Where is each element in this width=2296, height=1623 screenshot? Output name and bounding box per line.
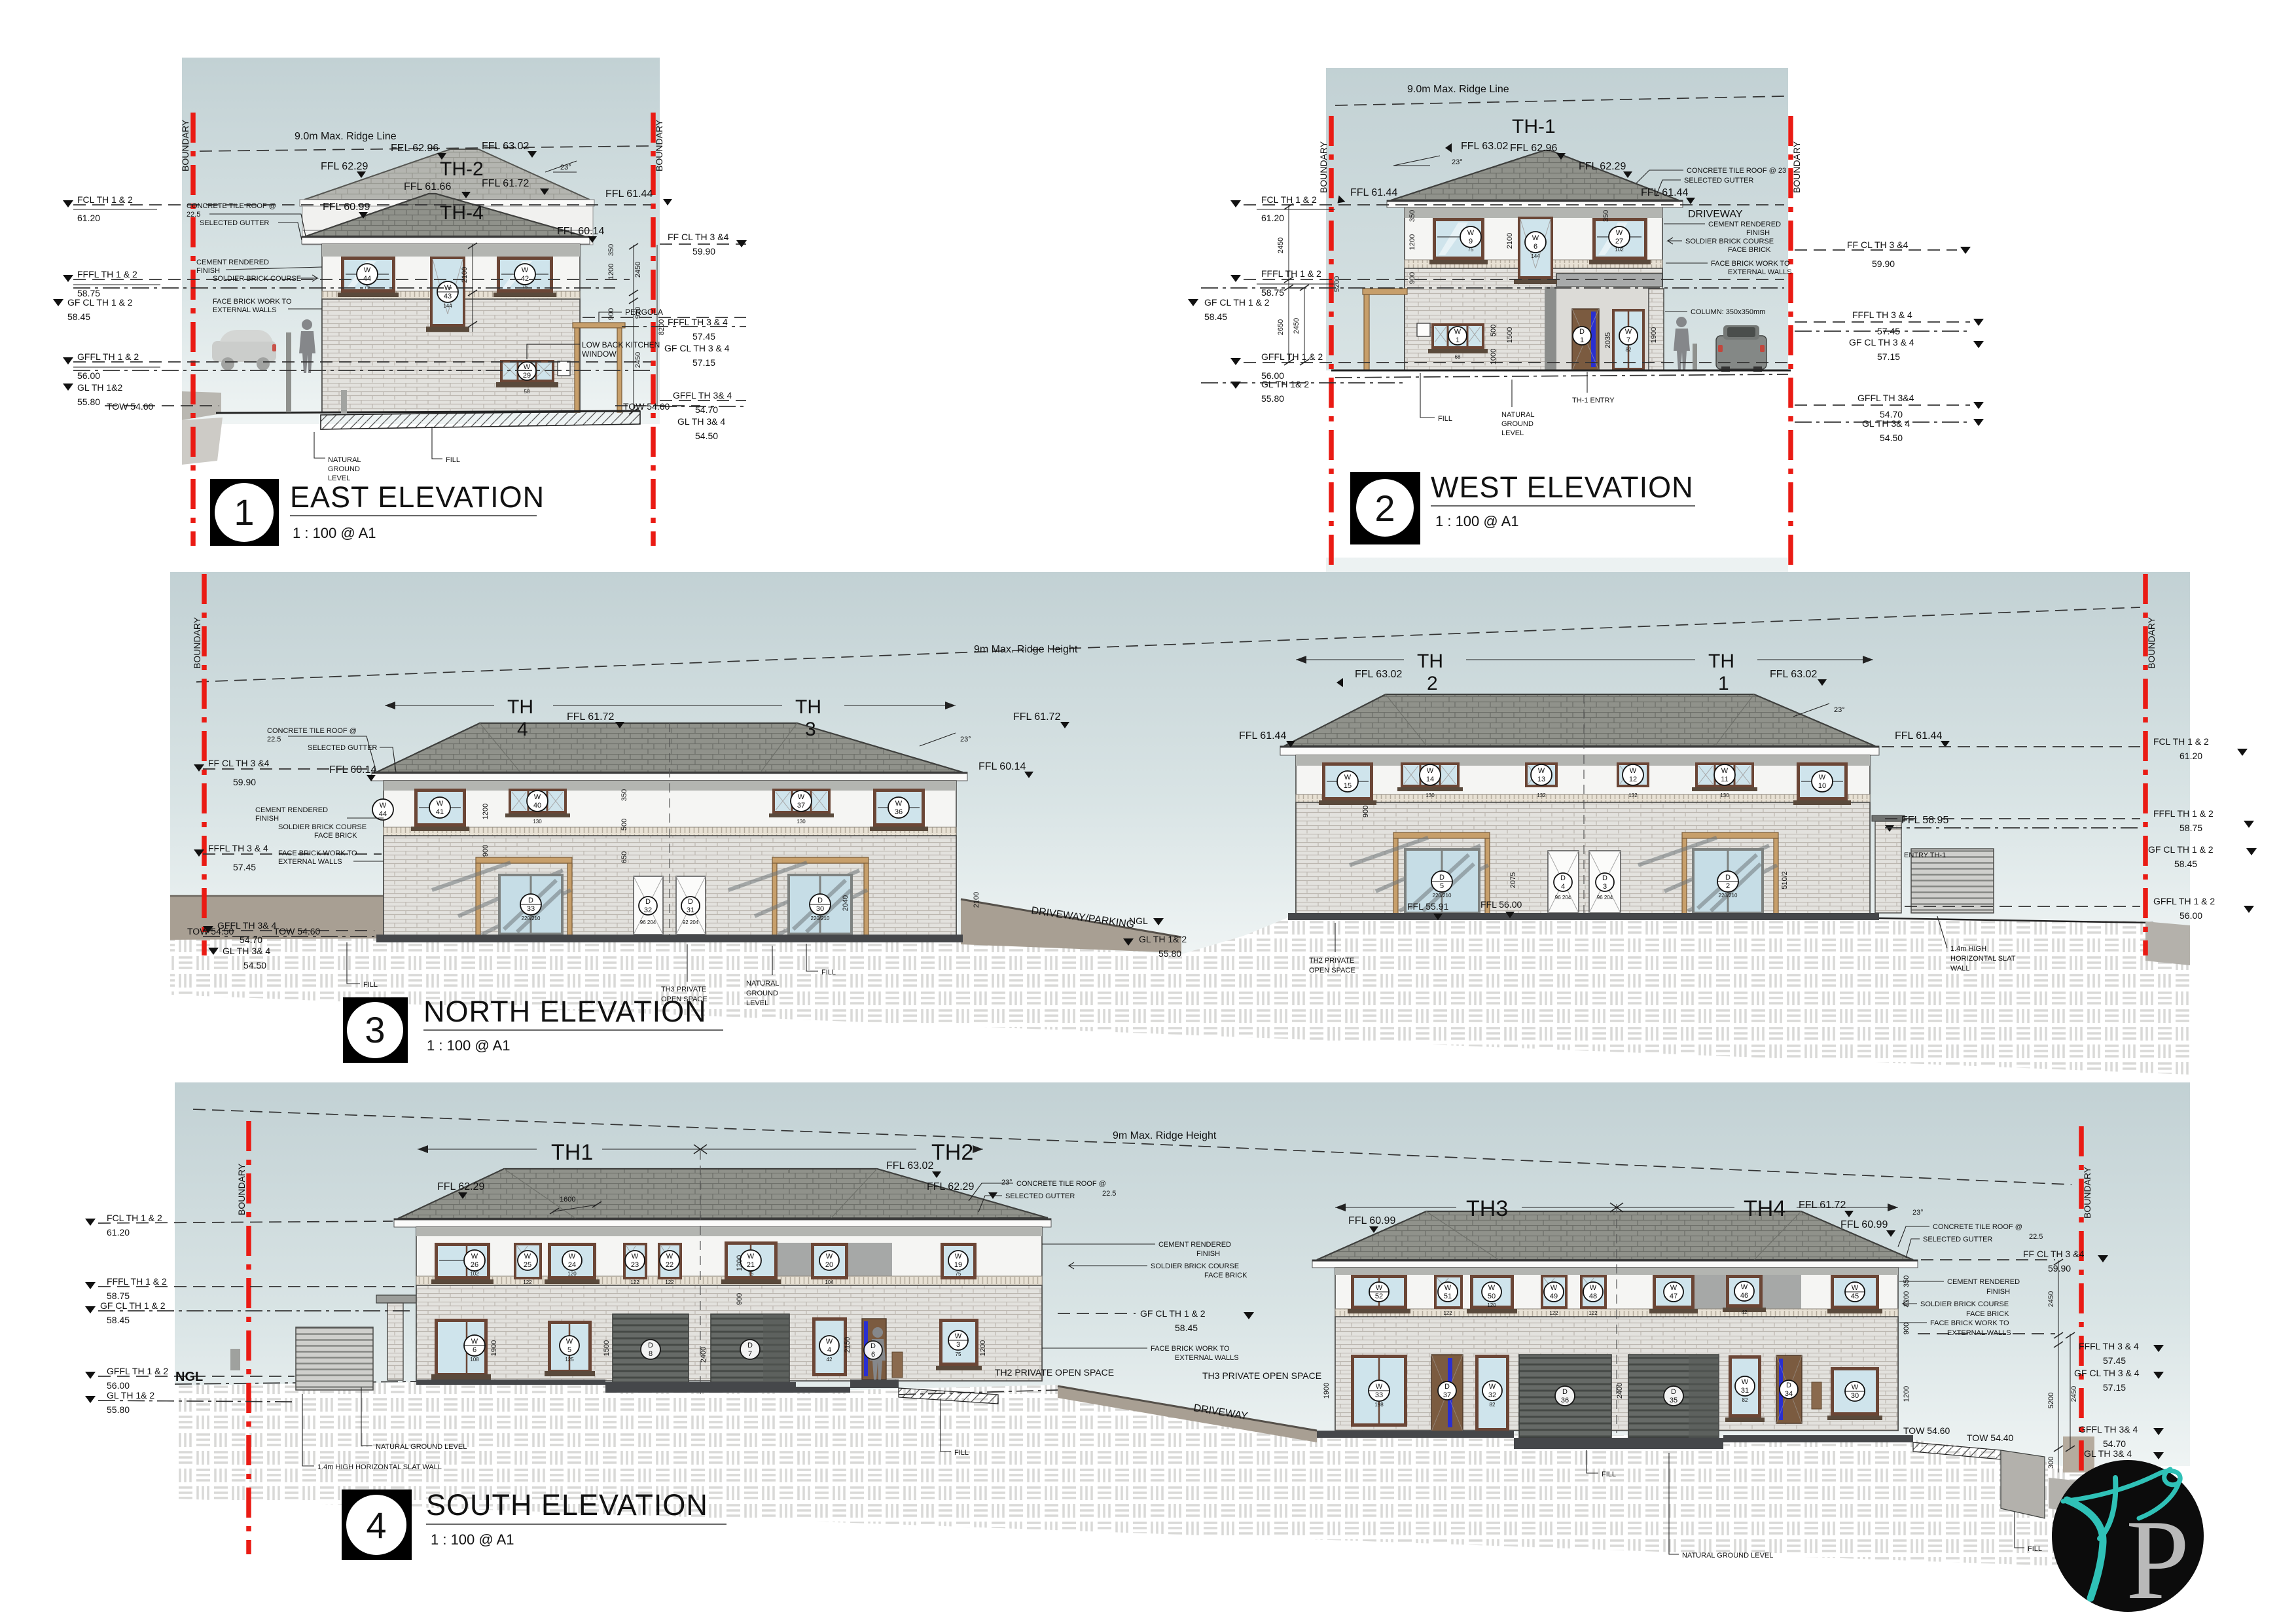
svg-text:82: 82 [1742, 1397, 1748, 1403]
svg-text:FFL 61.44: FFL 61.44 [1350, 187, 1397, 198]
svg-text:26: 26 [471, 1261, 478, 1269]
svg-text:TH3 PRIVATE: TH3 PRIVATE [661, 986, 706, 993]
svg-text:1200: 1200 [482, 804, 490, 819]
svg-text:SELECTED GUTTER: SELECTED GUTTER [1923, 1236, 1992, 1243]
svg-text:57.15: 57.15 [2103, 1382, 2126, 1393]
svg-text:W: W [1376, 1284, 1383, 1292]
svg-text:EXTERNAL WALLS: EXTERNAL WALLS [1947, 1329, 2011, 1337]
svg-text:102: 102 [1615, 247, 1624, 253]
svg-text:1900: 1900 [1323, 1383, 1331, 1399]
svg-text:2075: 2075 [1509, 872, 1517, 888]
svg-text:59.90: 59.90 [2048, 1263, 2071, 1274]
svg-text:FFL 61.44: FFL 61.44 [1239, 730, 1286, 741]
svg-text:33: 33 [1375, 1391, 1383, 1399]
svg-text:GFFL TH 3& 4: GFFL TH 3& 4 [673, 390, 732, 401]
svg-text:9m Max. Ridge Height: 9m Max. Ridge Height [974, 644, 1078, 655]
svg-text:W: W [522, 266, 529, 274]
svg-text:GF CL TH 1 & 2: GF CL TH 1 & 2 [2148, 844, 2214, 855]
svg-text:144: 144 [443, 303, 452, 309]
svg-text:FFFL TH 3 & 4: FFFL TH 3 & 4 [208, 843, 268, 853]
svg-text:W: W [1670, 1284, 1677, 1292]
svg-text:23°: 23° [560, 164, 571, 171]
svg-text:FILL: FILL [2028, 1545, 2042, 1553]
svg-text:FACE BRICK: FACE BRICK [1204, 1272, 1247, 1279]
svg-text:SOLDIER BRICK COURSE: SOLDIER BRICK COURSE [278, 823, 367, 831]
svg-text:55.80: 55.80 [77, 397, 100, 407]
svg-text:9.0m Max. Ridge Line: 9.0m Max. Ridge Line [1407, 84, 1509, 95]
svg-text:CEMENT RENDERED: CEMENT RENDERED [1158, 1241, 1231, 1249]
svg-text:52: 52 [1375, 1293, 1383, 1300]
svg-text:WINDOW: WINDOW [582, 349, 617, 359]
svg-text:2450: 2450 [1293, 318, 1300, 334]
svg-text:2100: 2100 [1506, 233, 1514, 249]
svg-text:GF CL TH 1 & 2: GF CL TH 1 & 2 [100, 1300, 166, 1311]
svg-text:FINISH: FINISH [1196, 1250, 1220, 1258]
svg-text:5: 5 [567, 1346, 571, 1354]
svg-text:NATURAL: NATURAL [746, 980, 780, 988]
svg-text:54.50: 54.50 [695, 431, 718, 441]
svg-text:W: W [1444, 1284, 1452, 1292]
svg-text:CONCRETE TILE ROOF @: CONCRETE TILE ROOF @ [267, 727, 357, 735]
svg-text:FILL: FILL [1602, 1471, 1616, 1478]
svg-text:5200: 5200 [2047, 1393, 2055, 1408]
svg-text:FFL 61.72: FFL 61.72 [1013, 711, 1060, 722]
svg-text:900: 900 [1903, 1323, 1910, 1334]
svg-text:FFL 58.95: FFL 58.95 [1901, 815, 1948, 826]
svg-text:W: W [826, 1253, 833, 1260]
svg-text:900: 900 [1408, 272, 1416, 284]
svg-text:CONCRETE TILE ROOF @: CONCRETE TILE ROOF @ [1016, 1180, 1106, 1188]
svg-text:2450: 2450 [634, 262, 642, 277]
svg-text:GL TH 1& 2: GL TH 1& 2 [1261, 379, 1309, 389]
svg-text:GFFL TH 1 & 2: GFFL TH 1 & 2 [2153, 896, 2215, 906]
svg-text:54.50: 54.50 [1880, 433, 1903, 443]
svg-text:1: 1 [234, 491, 254, 533]
svg-text:2040: 2040 [842, 895, 850, 911]
svg-text:2100: 2100 [973, 892, 980, 908]
svg-text:1 : 100 @ A1: 1 : 100 @ A1 [427, 1037, 511, 1054]
svg-text:36: 36 [895, 808, 903, 816]
svg-text:FFL 63.02: FFL 63.02 [886, 1160, 933, 1171]
svg-text:6: 6 [473, 1346, 476, 1354]
svg-text:58.75: 58.75 [2179, 823, 2202, 833]
svg-text:42: 42 [1742, 1310, 1748, 1315]
svg-text:FACE BRICK WORK TO: FACE BRICK WORK TO [213, 298, 292, 306]
svg-text:130: 130 [797, 819, 806, 825]
svg-text:24: 24 [568, 1261, 576, 1269]
svg-text:FACE BRICK: FACE BRICK [314, 832, 357, 840]
svg-text:FACE BRICK: FACE BRICK [1728, 246, 1771, 254]
svg-text:58.75: 58.75 [1261, 287, 1284, 298]
svg-text:5: 5 [1440, 882, 1444, 890]
svg-text:FCL TH 1 & 2: FCL TH 1 & 2 [107, 1213, 162, 1223]
svg-text:45: 45 [1851, 1293, 1859, 1300]
svg-text:59.90: 59.90 [233, 777, 256, 787]
svg-text:W: W [524, 1253, 531, 1260]
svg-text:6: 6 [1534, 243, 1537, 251]
svg-text:SOLDIER BRICK COURSE: SOLDIER BRICK COURSE [213, 275, 301, 283]
svg-text:COLUMN: 350x350mm: COLUMN: 350x350mm [1691, 308, 1765, 316]
svg-text:TH2 PRIVATE: TH2 PRIVATE [1309, 957, 1354, 965]
svg-text:FFFL TH 3 & 4: FFFL TH 3 & 4 [1852, 310, 1912, 320]
svg-text:22: 22 [666, 1261, 673, 1269]
svg-text:32: 32 [644, 906, 652, 914]
svg-text:NATURAL GROUND LEVEL: NATURAL GROUND LEVEL [376, 1443, 467, 1451]
svg-text:W: W [1742, 1378, 1749, 1386]
svg-text:CONCRETE TILE ROOF @ 23: CONCRETE TILE ROOF @ 23 [1687, 167, 1786, 175]
svg-text:W: W [1625, 328, 1632, 336]
svg-text:FFL 63.02: FFL 63.02 [1355, 669, 1402, 680]
svg-text:BOUNDARY: BOUNDARY [654, 119, 664, 171]
svg-text:D: D [1560, 874, 1566, 882]
svg-text:NORTH ELEVATION: NORTH ELEVATION [423, 995, 707, 1028]
svg-text:GL TH 1& 2: GL TH 1& 2 [1139, 934, 1187, 944]
svg-text:900: 900 [607, 308, 615, 320]
svg-text:1: 1 [1718, 673, 1729, 694]
svg-text:W: W [1454, 328, 1462, 336]
svg-text:3: 3 [805, 719, 816, 740]
svg-text:TH2 PRIVATE OPEN SPACE: TH2 PRIVATE OPEN SPACE [995, 1367, 1114, 1378]
svg-text:198: 198 [1374, 1402, 1384, 1408]
svg-text:92 204: 92 204 [683, 919, 699, 925]
svg-text:W: W [380, 802, 387, 810]
svg-text:102: 102 [470, 1271, 479, 1277]
svg-text:32: 32 [1488, 1391, 1496, 1399]
svg-text:122: 122 [1588, 1310, 1598, 1316]
svg-text:59.90: 59.90 [1872, 259, 1895, 269]
svg-text:2400: 2400 [700, 1347, 708, 1363]
svg-text:FFFL TH 1 & 2: FFFL TH 1 & 2 [2153, 808, 2214, 819]
svg-text:FACE BRICK WORK TO: FACE BRICK WORK TO [1930, 1319, 2009, 1327]
svg-text:FFL 60.14: FFL 60.14 [978, 761, 1026, 772]
svg-text:TOW 54.60: TOW 54.60 [623, 401, 670, 412]
svg-text:56.00: 56.00 [107, 1380, 130, 1391]
svg-text:2: 2 [1726, 882, 1730, 890]
svg-text:EAST ELEVATION: EAST ELEVATION [290, 480, 545, 514]
svg-text:11: 11 [1721, 776, 1728, 783]
svg-text:FFL 60.99: FFL 60.99 [1840, 1219, 1888, 1230]
svg-text:GF CL TH 3 & 4: GF CL TH 3 & 4 [664, 343, 730, 353]
svg-text:2: 2 [1427, 673, 1438, 694]
svg-text:20: 20 [825, 1261, 833, 1269]
svg-text:1200: 1200 [1903, 1386, 1910, 1402]
svg-text:D: D [688, 898, 693, 906]
svg-text:46: 46 [1740, 1292, 1748, 1300]
svg-text:NGL: NGL [175, 1370, 203, 1384]
svg-text:FINISH: FINISH [196, 267, 220, 275]
svg-text:ENTRY TH-1: ENTRY TH-1 [1904, 851, 1946, 859]
svg-text:TOW 54.60: TOW 54.60 [1903, 1425, 1950, 1436]
svg-text:W: W [666, 1253, 673, 1260]
svg-text:W: W [1532, 234, 1539, 242]
svg-text:TH3: TH3 [1466, 1196, 1508, 1221]
svg-text:W: W [1376, 1383, 1383, 1391]
svg-text:W: W [1344, 774, 1352, 781]
svg-text:W: W [632, 1253, 639, 1260]
svg-text:D: D [1439, 874, 1444, 882]
svg-text:75: 75 [1468, 247, 1474, 253]
svg-text:61.20: 61.20 [77, 213, 100, 223]
svg-text:GFFL TH 3& 4: GFFL TH 3& 4 [2079, 1424, 2138, 1435]
svg-text:57.45: 57.45 [233, 862, 256, 872]
svg-text:EXTERNAL WALLS: EXTERNAL WALLS [1175, 1354, 1239, 1362]
svg-text:NATURAL GROUND LEVEL: NATURAL GROUND LEVEL [1682, 1552, 1773, 1560]
svg-text:FFFL TH 1 & 2: FFFL TH 1 & 2 [1261, 268, 1321, 279]
svg-text:FFL 62.29: FFL 62.29 [1579, 161, 1626, 172]
svg-text:1000: 1000 [1490, 349, 1498, 365]
svg-text:23°: 23° [1834, 706, 1845, 714]
svg-text:FILL: FILL [821, 969, 836, 976]
svg-text:TH-1: TH-1 [1512, 116, 1556, 137]
svg-text:8: 8 [649, 1350, 653, 1358]
svg-text:SOLDIER BRICK COURSE: SOLDIER BRICK COURSE [1685, 238, 1774, 245]
svg-text:56.00: 56.00 [77, 370, 100, 381]
svg-text:50: 50 [1488, 1293, 1496, 1300]
svg-text:TH-2: TH-2 [440, 158, 484, 180]
svg-text:D: D [1444, 1383, 1450, 1391]
svg-text:44: 44 [379, 810, 387, 818]
svg-text:FFL 61.72: FFL 61.72 [567, 711, 614, 722]
svg-text:BOUNDARY: BOUNDARY [1791, 141, 1802, 193]
svg-text:500: 500 [1490, 325, 1498, 336]
svg-text:BOUNDARY: BOUNDARY [180, 119, 190, 171]
svg-text:TOW 54.40: TOW 54.40 [1967, 1433, 2014, 1443]
svg-text:57.45: 57.45 [692, 331, 715, 342]
svg-text:2100: 2100 [461, 267, 469, 283]
svg-text:15: 15 [1344, 782, 1352, 790]
svg-text:144: 144 [1531, 253, 1540, 259]
svg-text:920: 920 [634, 307, 642, 319]
svg-text:FF CL TH 3 &4: FF CL TH 3 &4 [668, 232, 729, 242]
svg-text:1200: 1200 [736, 1255, 744, 1271]
svg-text:23°: 23° [960, 736, 971, 743]
svg-text:W: W [955, 1253, 962, 1260]
svg-text:FFL 62.96: FFL 62.96 [1510, 143, 1557, 154]
svg-text:8200: 8200 [658, 319, 666, 335]
svg-text:58.45: 58.45 [107, 1315, 130, 1325]
svg-text:FF CL TH 3 &4: FF CL TH 3 &4 [1847, 240, 1909, 250]
svg-text:W: W [534, 793, 541, 801]
svg-text:CEMENT RENDERED: CEMENT RENDERED [1708, 221, 1781, 228]
svg-text:BOUNDARY: BOUNDARY [2082, 1166, 2092, 1219]
svg-text:82: 82 [1490, 1402, 1496, 1408]
svg-text:21: 21 [747, 1261, 755, 1269]
svg-text:75: 75 [522, 284, 528, 290]
svg-text:D: D [1602, 874, 1607, 882]
svg-text:75: 75 [748, 1271, 754, 1277]
svg-text:W: W [566, 1338, 573, 1346]
svg-text:12: 12 [1629, 776, 1637, 783]
svg-text:36: 36 [1561, 1397, 1569, 1404]
svg-text:W: W [1852, 1284, 1859, 1292]
svg-text:W: W [1630, 767, 1637, 775]
svg-text:GL TH 1&2: GL TH 1&2 [77, 382, 122, 393]
svg-text:TH: TH [795, 696, 821, 718]
svg-text:33: 33 [527, 905, 535, 913]
svg-text:D: D [645, 898, 651, 906]
svg-text:350: 350 [607, 244, 615, 256]
svg-text:4: 4 [366, 1505, 386, 1546]
svg-text:CEMENT RENDERED: CEMENT RENDERED [1947, 1278, 2020, 1286]
svg-text:FFL 56.00: FFL 56.00 [1480, 899, 1522, 910]
svg-text:7: 7 [748, 1350, 752, 1358]
svg-text:48: 48 [1589, 1293, 1597, 1300]
svg-text:2450: 2450 [2047, 1291, 2055, 1307]
svg-text:FFL 62.29: FFL 62.29 [321, 161, 368, 172]
svg-text:55.80: 55.80 [1158, 948, 1181, 959]
svg-text:W: W [798, 793, 805, 801]
svg-text:GFFL TH 1 & 2: GFFL TH 1 & 2 [107, 1366, 168, 1376]
svg-text:4: 4 [1561, 883, 1565, 891]
svg-text:HORIZONTAL SLAT: HORIZONTAL SLAT [1950, 955, 2016, 963]
svg-text:54.70: 54.70 [695, 404, 718, 415]
svg-text:W: W [1427, 767, 1434, 775]
svg-text:SELECTED GUTTER: SELECTED GUTTER [308, 744, 377, 752]
svg-text:D: D [817, 897, 823, 904]
svg-text:D: D [1579, 328, 1585, 336]
svg-text:LOW BACK KITCHEN: LOW BACK KITCHEN [582, 340, 660, 349]
svg-text:EXTERNAL WALLS: EXTERNAL WALLS [213, 306, 277, 314]
svg-text:58: 58 [524, 389, 530, 395]
svg-text:108: 108 [470, 1357, 479, 1363]
svg-text:22.5: 22.5 [2029, 1233, 2043, 1241]
svg-text:CEMENT RENDERED: CEMENT RENDERED [255, 806, 328, 814]
svg-text:3: 3 [365, 1009, 385, 1050]
svg-text:40: 40 [533, 802, 541, 810]
svg-text:W: W [1551, 1284, 1558, 1292]
svg-text:58.45: 58.45 [1204, 312, 1227, 322]
svg-text:130: 130 [533, 819, 542, 825]
svg-text:BOUNDARY: BOUNDARY [192, 616, 202, 669]
svg-text:1 : 100 @ A1: 1 : 100 @ A1 [431, 1531, 514, 1548]
svg-text:TH2: TH2 [931, 1140, 973, 1165]
svg-text:TOW 54.50: TOW 54.50 [187, 926, 234, 936]
svg-text:42: 42 [827, 1357, 833, 1363]
svg-text:CONCRETE TILE ROOF @: CONCRETE TILE ROOF @ [1933, 1223, 2022, 1231]
svg-text:FCL TH 1 & 2: FCL TH 1 & 2 [1261, 194, 1317, 205]
svg-text:TOW 54.60: TOW 54.60 [274, 926, 321, 936]
svg-text:GL TH 1& 2: GL TH 1& 2 [107, 1390, 154, 1400]
svg-text:6: 6 [871, 1351, 875, 1359]
svg-text:FCL TH 1 & 2: FCL TH 1 & 2 [77, 194, 133, 205]
svg-text:NGL: NGL [1129, 916, 1148, 926]
svg-text:1.4m HIGH HORIZONTAL SLAT WALL: 1.4m HIGH HORIZONTAL SLAT WALL [317, 1463, 442, 1471]
svg-text:130: 130 [1426, 793, 1435, 798]
svg-text:W: W [826, 1338, 833, 1346]
svg-text:FINISH: FINISH [1986, 1288, 2010, 1296]
svg-text:SOLDIER BRICK COURSE: SOLDIER BRICK COURSE [1920, 1300, 2009, 1308]
svg-text:FFFL TH 3 & 4: FFFL TH 3 & 4 [2079, 1341, 2139, 1351]
svg-text:43: 43 [444, 293, 452, 300]
svg-text:SOLDIER BRICK COURSE: SOLDIER BRICK COURSE [1151, 1262, 1239, 1270]
svg-text:2035: 2035 [1604, 332, 1612, 348]
svg-text:FEL 62.96: FEL 62.96 [391, 143, 439, 154]
svg-text:31: 31 [1741, 1387, 1749, 1395]
svg-text:23°: 23° [1001, 1179, 1013, 1186]
svg-text:1200: 1200 [979, 1340, 987, 1356]
svg-text:350: 350 [1602, 210, 1610, 222]
svg-text:30: 30 [1851, 1392, 1859, 1400]
svg-text:4: 4 [517, 719, 528, 740]
svg-text:19: 19 [954, 1261, 962, 1269]
svg-text:58.45: 58.45 [2174, 859, 2197, 869]
svg-text:37: 37 [1443, 1391, 1451, 1399]
svg-text:4: 4 [827, 1346, 831, 1354]
svg-text:7: 7 [1626, 336, 1630, 344]
svg-text:47: 47 [1670, 1293, 1677, 1300]
svg-text:120: 120 [567, 1271, 577, 1277]
svg-text:41: 41 [436, 808, 444, 816]
svg-text:TOW 54.60: TOW 54.60 [107, 401, 154, 412]
svg-text:1900: 1900 [490, 1340, 498, 1356]
svg-text:GL TH 3& 4: GL TH 3& 4 [1862, 418, 1910, 429]
svg-text:GROUND: GROUND [328, 465, 360, 473]
svg-text:61.20: 61.20 [107, 1227, 130, 1238]
svg-text:D: D [528, 897, 533, 904]
svg-text:FFL 61.72: FFL 61.72 [1799, 1200, 1846, 1211]
svg-text:W: W [955, 1332, 962, 1340]
svg-text:122: 122 [523, 1279, 532, 1285]
svg-text:35: 35 [1670, 1397, 1677, 1404]
svg-text:FINISH: FINISH [255, 815, 279, 823]
svg-text:300: 300 [2047, 1457, 2055, 1469]
svg-text:TH: TH [1417, 651, 1443, 672]
svg-text:W: W [1488, 1284, 1496, 1292]
svg-text:FFL 55.91: FFL 55.91 [1407, 901, 1449, 912]
svg-text:42: 42 [521, 275, 529, 283]
svg-text:25: 25 [524, 1261, 531, 1269]
svg-text:9m Max. Ridge Height: 9m Max. Ridge Height [1113, 1130, 1217, 1141]
svg-text:FCL TH 1 & 2: FCL TH 1 & 2 [2153, 736, 2209, 747]
svg-text:34: 34 [1785, 1390, 1793, 1398]
svg-text:FFL 60.99: FFL 60.99 [1348, 1215, 1395, 1226]
svg-text:57.15: 57.15 [1877, 351, 1900, 362]
svg-text:31: 31 [687, 906, 694, 914]
svg-text:GF CL TH 3 & 4: GF CL TH 3 & 4 [1849, 337, 1914, 348]
svg-text:GF CL TH 1 & 2: GF CL TH 1 & 2 [1204, 297, 1270, 308]
svg-text:W: W [1489, 1383, 1496, 1391]
svg-text:14: 14 [1426, 776, 1434, 783]
svg-text:1200: 1200 [607, 264, 615, 279]
svg-text:13: 13 [1537, 776, 1545, 783]
svg-text:22.5: 22.5 [267, 736, 281, 743]
svg-text:W: W [1819, 774, 1826, 781]
svg-text:GL TH 3& 4: GL TH 3& 4 [223, 946, 270, 956]
svg-text:75: 75 [956, 1271, 961, 1277]
svg-text:350: 350 [1408, 210, 1416, 222]
svg-text:132: 132 [1628, 793, 1638, 798]
svg-text:GL TH 3& 4: GL TH 3& 4 [677, 416, 725, 427]
svg-text:BOUNDARY: BOUNDARY [236, 1163, 247, 1215]
svg-text:TH3 PRIVATE OPEN SPACE: TH3 PRIVATE OPEN SPACE [1202, 1370, 1321, 1381]
svg-text:FFL 61.44: FFL 61.44 [1641, 187, 1688, 198]
svg-text:OPEN SPACE: OPEN SPACE [1309, 967, 1355, 974]
svg-text:61.20: 61.20 [2179, 751, 2202, 761]
svg-text:GFFL TH 1 & 2: GFFL TH 1 & 2 [77, 351, 139, 362]
svg-text:FILL: FILL [1438, 415, 1452, 423]
svg-text:130: 130 [1720, 793, 1729, 798]
svg-text:CEMENT RENDERED: CEMENT RENDERED [196, 259, 269, 266]
svg-text:FF CL TH 3 &4: FF CL TH 3 &4 [208, 758, 270, 768]
svg-text:FF CL TH 3 &4: FF CL TH 3 &4 [2023, 1249, 2085, 1259]
svg-text:W: W [1467, 229, 1475, 237]
svg-text:27: 27 [1615, 238, 1623, 245]
svg-text:3: 3 [956, 1341, 960, 1349]
svg-text:96 204: 96 204 [1597, 895, 1613, 901]
svg-text:1200: 1200 [1903, 1291, 1910, 1307]
svg-text:GL TH 3& 4: GL TH 3& 4 [2084, 1448, 2132, 1459]
svg-text:W: W [1616, 229, 1623, 237]
